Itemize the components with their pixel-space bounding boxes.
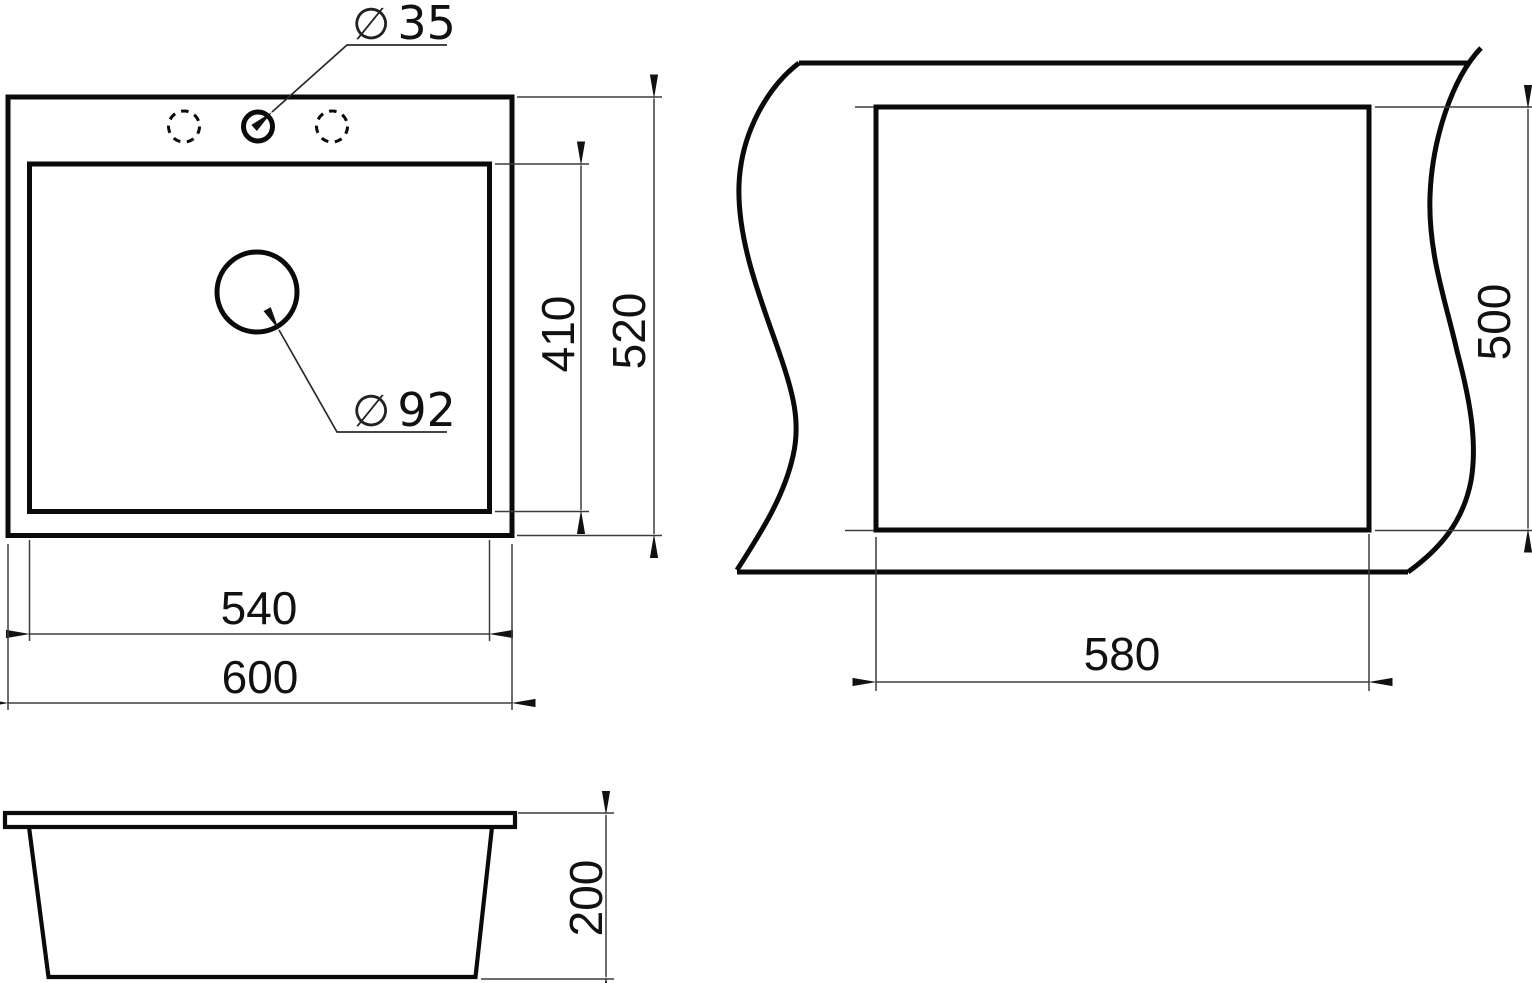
drain-hole <box>217 252 297 332</box>
drain-hole-label: ∅92 <box>352 383 456 437</box>
faucet-hole-value: 35 <box>397 0 456 50</box>
dim-520-value: 520 <box>603 293 655 370</box>
drawing-page: ∅35 ∅92 540 600 410 520 <box>0 0 1532 983</box>
dim-500-value: 500 <box>1468 284 1520 361</box>
optional-hole-left <box>169 111 200 142</box>
drain-hole-value: 92 <box>397 383 456 437</box>
sink-technical-drawing: ∅35 ∅92 540 600 410 520 <box>0 0 1532 983</box>
top-view: ∅35 ∅92 540 600 410 520 <box>8 0 662 710</box>
side-view-rim <box>5 813 515 827</box>
optional-hole-right <box>317 111 348 142</box>
dim-410-value: 410 <box>532 296 584 373</box>
faucet-hole-label: ∅35 <box>352 0 456 50</box>
countertop-cutout-view: 500 580 <box>737 48 1532 691</box>
dim-540-value: 540 <box>221 582 298 634</box>
dim-600-value: 600 <box>222 651 299 703</box>
faucet-hole <box>244 112 273 141</box>
dim-580-value: 580 <box>1084 628 1161 680</box>
top-view-bowl-edge <box>30 164 490 512</box>
break-line-left <box>737 63 799 570</box>
side-view-bowl <box>29 827 492 977</box>
side-view: 200 <box>5 813 614 979</box>
dim-200-value: 200 <box>560 860 612 937</box>
diameter-symbol: ∅ <box>352 0 390 50</box>
diameter-symbol: ∅ <box>352 386 390 437</box>
faucet-hole-leader-line <box>272 45 447 112</box>
cutout-opening <box>876 107 1369 530</box>
